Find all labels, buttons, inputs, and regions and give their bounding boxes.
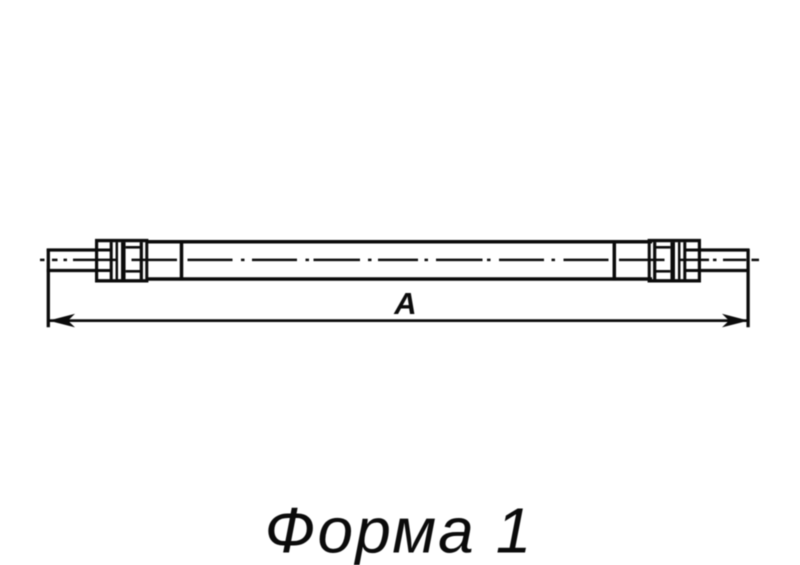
svg-text:A: A — [393, 286, 416, 321]
svg-text:Форма 1: Форма 1 — [265, 495, 534, 565]
